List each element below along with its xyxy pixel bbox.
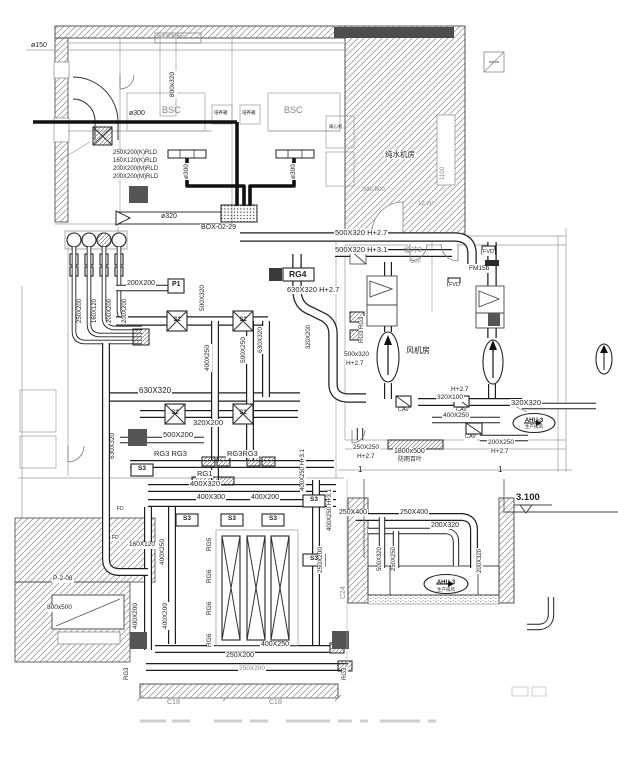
grille-rg3-icon <box>247 457 260 466</box>
thick-pipe-network <box>33 122 314 225</box>
equipment-bank <box>216 530 298 646</box>
diffuser-s3-icon <box>262 514 284 526</box>
grille-rg1-icon <box>192 477 234 485</box>
diffuser-s3-icon <box>176 514 198 526</box>
shaft-dark-icon <box>128 429 147 446</box>
grille-rg3-icon <box>350 330 364 340</box>
grille-rg3-icon <box>217 457 230 466</box>
shaft-dark-icon <box>130 632 147 649</box>
hvac-duct-plan-drawing: ø150接至屋面用PG800x320纯水机房580 800110012 m²BS… <box>0 0 618 763</box>
crossed-unit-icon <box>271 536 289 640</box>
diffuser-s2-icon <box>233 404 253 424</box>
diffuser-s3-icon <box>131 464 153 476</box>
shaft-dark-icon <box>332 631 349 649</box>
grille-rg3-icon <box>338 661 352 671</box>
fvd-icon <box>482 246 495 254</box>
cav-box-icon <box>454 396 469 407</box>
diffuser-s3-icon <box>303 554 325 566</box>
p1-tag-box <box>168 279 184 293</box>
rg4-tag-box <box>283 268 314 281</box>
shaft-dark-icon <box>488 313 500 326</box>
cav-box-icon <box>466 423 482 434</box>
fire-damper-icon <box>485 260 499 266</box>
diffuser-s2-icon <box>167 311 187 331</box>
junction-box <box>221 205 257 222</box>
damper-triangle-icon <box>116 211 130 225</box>
diffuser-s2-icon <box>233 311 253 331</box>
section-view <box>348 498 514 604</box>
rain-louver-icon <box>388 440 443 449</box>
grille-rg3-icon <box>202 457 215 466</box>
plan-linework <box>0 0 618 763</box>
diffuser-s3-icon <box>221 514 243 526</box>
diffuser-s2-icon <box>165 404 185 424</box>
fvd-icon <box>448 278 460 286</box>
stamp <box>484 52 504 72</box>
grille-dark-icon <box>269 268 282 281</box>
grille-rg3-icon <box>350 312 364 322</box>
crossed-unit-icon <box>222 536 240 640</box>
shaft-dark-icon <box>129 186 148 203</box>
grille-rg3-icon <box>262 457 275 466</box>
cav-box-icon <box>396 396 411 407</box>
diffuser-s3-icon <box>303 495 325 507</box>
crossed-unit-icon <box>247 536 265 640</box>
grille-icon <box>133 329 149 345</box>
